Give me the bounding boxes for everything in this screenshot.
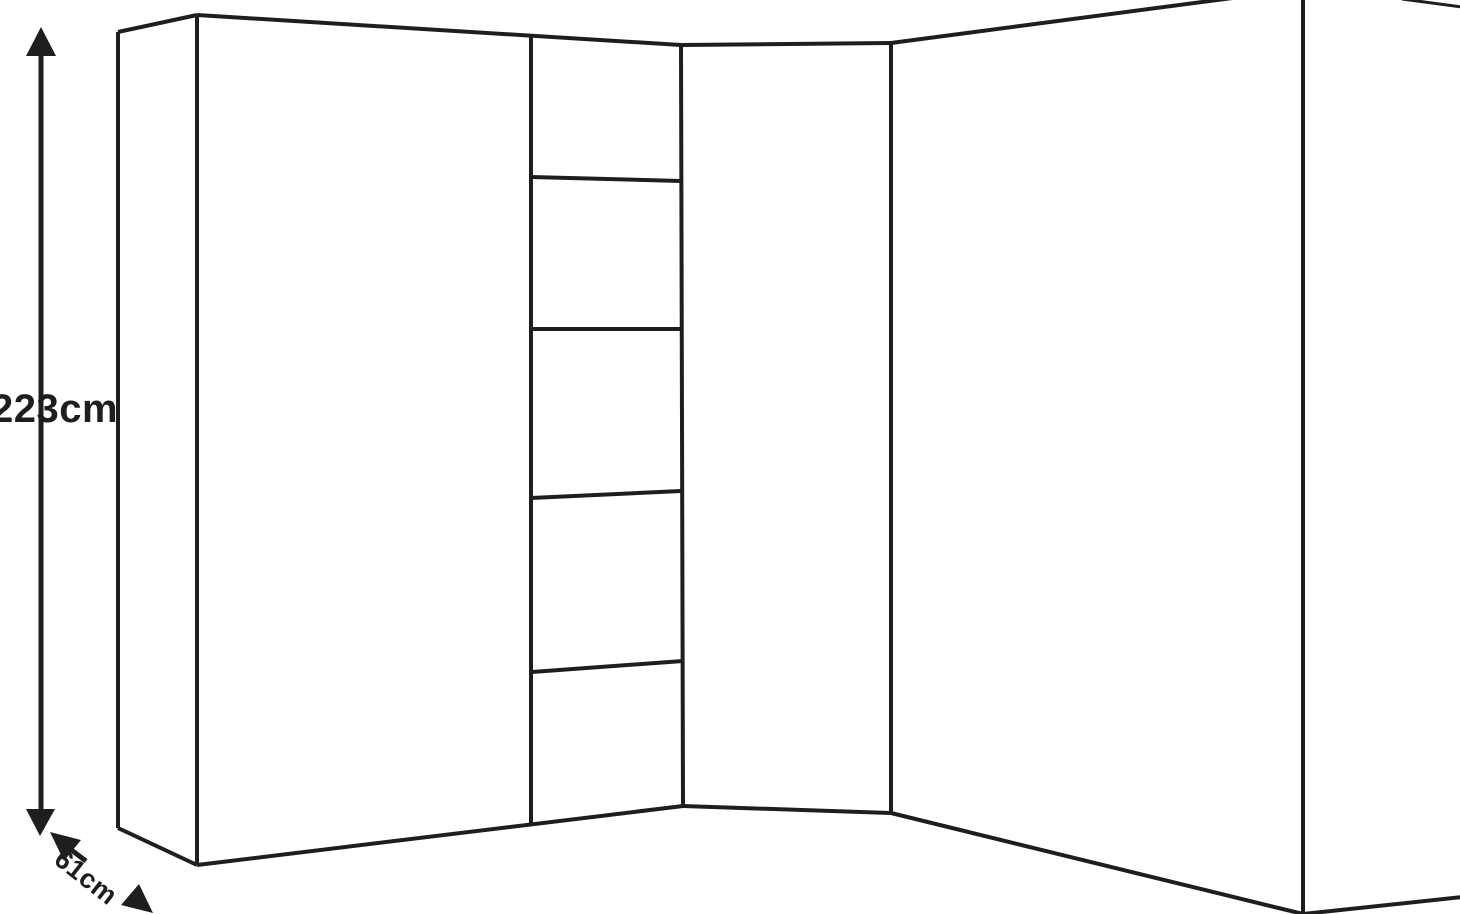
depth-arrow-head-downright xyxy=(121,884,153,913)
mid-panel-top-edge xyxy=(681,43,891,45)
wardrobe-line-drawing xyxy=(0,0,1460,914)
height-arrow-head-down xyxy=(26,809,55,836)
right-panel-top-edge xyxy=(891,0,1240,43)
height-dimension-label: 223cm xyxy=(0,389,118,429)
shelf-divider-3 xyxy=(531,491,681,498)
left-unit-bottom-edge xyxy=(197,806,683,865)
height-arrow-head-up xyxy=(26,27,56,56)
left-side-panel-bottom-edge xyxy=(118,828,197,865)
left-unit-top-edge xyxy=(197,15,681,45)
shelf-divider-1 xyxy=(531,177,681,181)
corner-front-edge xyxy=(681,45,683,806)
far-panel-bottom-edge xyxy=(1303,897,1460,914)
left-side-panel-top-edge xyxy=(118,15,197,32)
height-arrow-icon xyxy=(26,27,56,836)
mid-panel-bottom-edge xyxy=(683,806,891,813)
wardrobe-outline-group xyxy=(118,0,1460,914)
diagram-canvas: 223cm 61cm xyxy=(0,0,1460,914)
right-panel-bottom-edge xyxy=(891,813,1303,914)
far-panel-top-edge xyxy=(1402,0,1460,7)
shelf-divider-4 xyxy=(532,661,683,672)
